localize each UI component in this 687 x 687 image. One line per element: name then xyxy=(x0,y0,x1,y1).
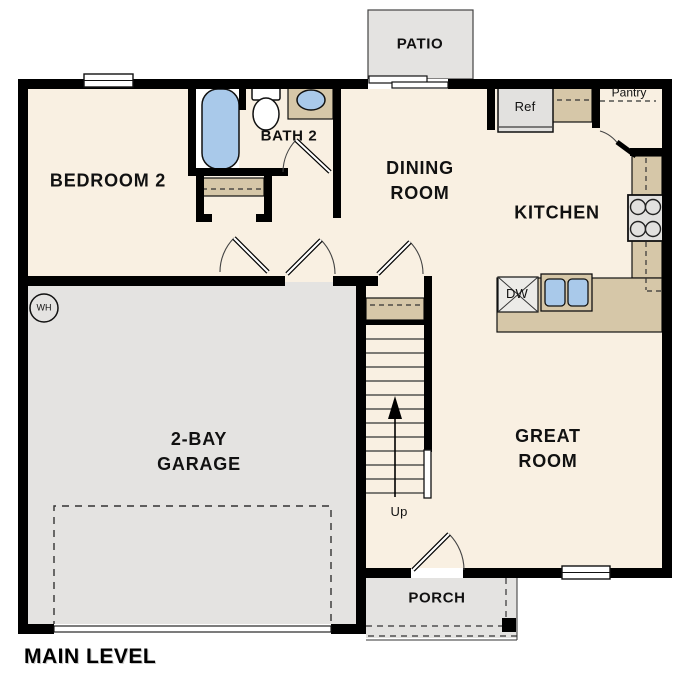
kitchen-counter-ref xyxy=(552,86,592,122)
garage-line1: 2-BAY xyxy=(157,427,241,452)
wall-garage-top xyxy=(18,276,285,286)
sink-basin-right xyxy=(568,279,588,306)
bedroom-closet-shelf xyxy=(198,178,264,196)
dining-line2: ROOM xyxy=(386,181,454,206)
wall-closet-left xyxy=(196,168,204,222)
dining-room-label: DINING ROOM xyxy=(386,156,454,206)
bedroom2-label: BEDROOM 2 xyxy=(50,168,166,193)
wall-garage-right xyxy=(356,276,366,634)
great-line1: GREAT xyxy=(515,424,581,449)
great-line2: ROOM xyxy=(515,449,581,474)
wall-garage-bottom-left xyxy=(18,624,54,634)
stairs-up-label: Up xyxy=(390,503,407,521)
stair-railing xyxy=(424,450,431,498)
garage-line2: GARAGE xyxy=(157,452,241,477)
sink-basin-left xyxy=(545,279,565,306)
patio-label: PATIO xyxy=(397,34,444,55)
wall-closet-front-right xyxy=(256,214,272,222)
patio-slider-panel-2 xyxy=(392,82,448,88)
bath2-label: BATH 2 xyxy=(261,126,318,147)
garage-label: 2-BAY GARAGE xyxy=(157,427,241,477)
wall-ref-stub xyxy=(487,79,495,130)
kitchen-label: KITCHEN xyxy=(514,200,600,225)
front-door-opening xyxy=(411,568,463,578)
wall-closet-right xyxy=(264,168,272,222)
dishwasher-label: DW xyxy=(506,285,528,303)
wall-hall-bottom xyxy=(333,276,378,286)
wall-bath-left xyxy=(188,79,196,176)
wall-closet-front-left xyxy=(196,214,212,222)
wall-pantry-stub xyxy=(592,79,600,128)
wall-stair-right xyxy=(424,276,432,452)
stair-top-edge xyxy=(366,320,424,325)
stair-closet-shelf xyxy=(366,298,424,320)
wall-tub-stub xyxy=(239,84,246,110)
page-title: MAIN LEVEL xyxy=(24,645,156,669)
pantry-label: Pantry xyxy=(612,85,647,102)
wall-bath-right xyxy=(333,79,341,218)
wall-bath-bottom xyxy=(196,168,288,176)
porch-label: PORCH xyxy=(408,588,465,609)
great-room-label: GREAT ROOM xyxy=(515,424,581,474)
vanity-sink-icon xyxy=(297,90,325,110)
wall-garage-bottom-right xyxy=(331,624,366,634)
porch-post xyxy=(502,618,516,632)
wall-left xyxy=(18,79,28,634)
water-heater-label: WH xyxy=(37,302,52,315)
floorplan-canvas xyxy=(0,0,687,687)
floor-plan: PATIO BEDROOM 2 BATH 2 DINING ROOM KITCH… xyxy=(0,0,687,687)
bathtub-icon xyxy=(202,89,239,169)
garage-door-panel xyxy=(54,626,331,632)
refrigerator-label: Ref xyxy=(515,98,536,116)
dining-line1: DINING xyxy=(386,156,454,181)
